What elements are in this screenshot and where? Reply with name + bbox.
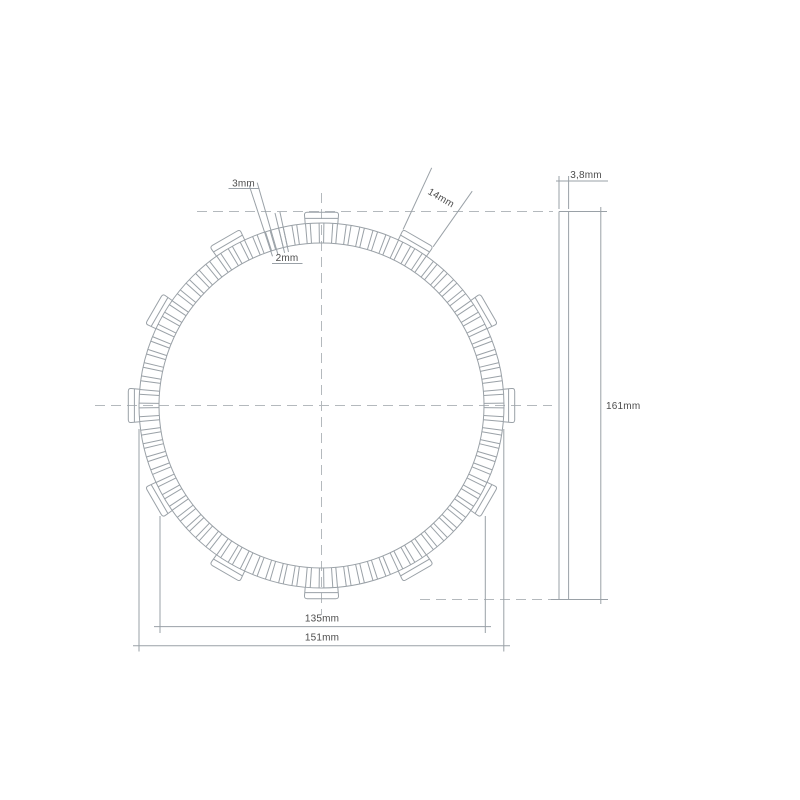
- pad-groove-line: [310, 568, 311, 588]
- pad-groove-line: [483, 428, 503, 431]
- pad-groove-line: [139, 416, 159, 417]
- pad-groove-line: [367, 561, 373, 580]
- pad-groove-line: [367, 230, 373, 249]
- pad-groove-line: [371, 560, 377, 579]
- pad-groove-line: [477, 354, 496, 360]
- ext-line-14mm-a: [403, 168, 432, 230]
- pad-groove-line: [356, 564, 360, 584]
- pad-groove-line: [180, 509, 196, 522]
- pad-groove-line: [245, 553, 253, 571]
- pad-groove-line: [141, 381, 161, 384]
- pad-groove-line: [143, 440, 163, 444]
- pad-groove-line: [270, 561, 276, 580]
- pad-groove-line: [186, 515, 201, 528]
- pad-groove-line: [480, 367, 500, 371]
- pad-groove-line: [461, 312, 478, 322]
- pad-groove-line: [483, 420, 503, 422]
- pad-groove-line: [172, 301, 188, 313]
- drawing-canvas: 3mm 2mm 14mm 3,8mm 161mm 135mm 151mm: [0, 0, 800, 800]
- pad-groove-line: [467, 478, 485, 487]
- pad-groove-line: [144, 363, 164, 368]
- pad-groove-line: [306, 224, 308, 244]
- pad-groove-line: [348, 225, 351, 245]
- pad-groove-line: [431, 270, 444, 285]
- pad-groove-line: [463, 316, 480, 326]
- pad-groove-line: [189, 280, 203, 294]
- pad-groove-line: [228, 545, 238, 562]
- pad-groove-line: [221, 541, 232, 558]
- pad-groove-line: [265, 560, 271, 579]
- pad-groove-line: [394, 551, 403, 569]
- pad-groove-line: [240, 551, 249, 569]
- pad-groove-line: [177, 505, 193, 517]
- technical-drawing-svg: 3mm 2mm 14mm 3,8mm 161mm 135mm 151mm: [0, 0, 800, 800]
- pad-groove-line: [425, 531, 438, 547]
- pad-groove-line: [332, 223, 333, 243]
- pad-groove-line: [479, 363, 499, 368]
- pad-groove-line: [371, 232, 377, 251]
- pad-groove-line: [206, 531, 219, 547]
- pad-groove-line: [411, 541, 422, 558]
- pad-groove-line: [165, 312, 182, 322]
- pad-groove-line: [455, 499, 471, 511]
- pad-groove-line: [139, 394, 159, 395]
- pad-groove-line: [467, 324, 485, 333]
- pad-groove-line: [356, 227, 360, 247]
- pad-groove-line: [210, 534, 222, 550]
- pad-groove-line: [143, 367, 163, 371]
- pad-groove-line: [196, 523, 210, 537]
- pad-groove-line: [461, 489, 478, 499]
- pad-groove-line: [469, 474, 487, 482]
- pad-groove-line: [421, 261, 433, 277]
- pad-groove-line: [310, 223, 311, 243]
- ext-line-2mm-a: [280, 212, 289, 252]
- pad-groove-line: [421, 534, 433, 550]
- pad-groove-line: [484, 416, 504, 417]
- pad-groove-line: [336, 567, 338, 587]
- pad-groove-line: [297, 567, 300, 587]
- pad-groove-line: [344, 225, 347, 245]
- pad-groove-line: [158, 478, 176, 487]
- pad-groove-line: [146, 354, 165, 360]
- pad-groove-line: [483, 381, 503, 384]
- dim-label-tab-14mm: 14mm: [426, 187, 456, 211]
- pad-groove-line: [447, 509, 463, 522]
- pad-groove-line: [482, 376, 502, 379]
- pad-groove-line: [156, 474, 174, 482]
- dim-label-overall-161mm: 161mm: [606, 401, 640, 412]
- pad-groove-line: [292, 225, 295, 245]
- pad-groove-line: [148, 349, 167, 355]
- pad-groove-line: [394, 242, 403, 260]
- pad-groove-line: [206, 264, 219, 280]
- pad-groove-line: [158, 324, 176, 333]
- pad-groove-line: [306, 567, 308, 587]
- pad-groove-line: [483, 390, 503, 392]
- pad-groove-line: [141, 376, 161, 379]
- pad-groove-line: [144, 444, 164, 449]
- pad-groove-line: [455, 301, 471, 313]
- pad-groove-line: [479, 444, 499, 449]
- pad-groove-line: [189, 518, 203, 532]
- pad-groove-line: [390, 240, 398, 258]
- pad-groove-line: [411, 253, 422, 270]
- pad-groove-line: [476, 349, 495, 355]
- pad-groove-line: [401, 547, 411, 564]
- pad-groove-line: [169, 305, 186, 316]
- pad-groove-line: [297, 225, 300, 245]
- pad-groove-line: [439, 280, 453, 294]
- pad-groove-line: [360, 228, 365, 248]
- pad-groove-line: [141, 428, 161, 431]
- pad-groove-line: [332, 568, 333, 588]
- dim-label-thickness-3-8mm: 3,8mm: [570, 170, 602, 181]
- pad-groove-line: [146, 451, 165, 457]
- pad-groove-line: [390, 553, 398, 571]
- pad-groove-line: [431, 526, 444, 541]
- pad-groove-line: [196, 273, 210, 287]
- pad-groove-line: [469, 329, 487, 337]
- pad-groove-line: [172, 499, 188, 511]
- pad-groove-line: [245, 240, 253, 258]
- pad-groove-line: [210, 261, 222, 277]
- pad-groove-line: [450, 505, 466, 517]
- pad-groove-line: [415, 256, 427, 272]
- pad-groove-line: [457, 495, 474, 506]
- pad-groove-line: [482, 432, 502, 435]
- pad-groove-line: [217, 256, 229, 272]
- pad-groove-line: [360, 563, 365, 583]
- pad-groove-line: [199, 270, 212, 285]
- dim-label-inner-135mm: 135mm: [305, 614, 339, 625]
- pad-groove-line: [476, 455, 495, 461]
- pad-groove-line: [405, 545, 415, 562]
- pad-groove-line: [140, 390, 160, 392]
- pad-groove-line: [169, 495, 186, 506]
- pad-groove-line: [228, 249, 238, 266]
- pad-groove-line: [232, 246, 242, 263]
- pad-groove-line: [442, 515, 457, 528]
- ext-line-2mm-b: [275, 213, 285, 253]
- pad-groove-line: [292, 566, 295, 586]
- pad-groove-line: [344, 567, 347, 587]
- pad-groove-line: [148, 455, 167, 461]
- pad-groove-line: [162, 485, 179, 495]
- pad-groove-line: [180, 290, 196, 303]
- pad-groove-line: [177, 294, 193, 306]
- pad-groove-line: [232, 547, 242, 564]
- pad-groove-line: [283, 564, 287, 584]
- pad-groove-line: [265, 232, 271, 251]
- pad-groove-line: [221, 253, 232, 270]
- pad-groove-line: [162, 316, 179, 326]
- pad-groove-line: [270, 230, 276, 249]
- pad-groove-line: [442, 283, 457, 296]
- dim-label-outer-151mm: 151mm: [305, 633, 339, 644]
- pad-groove-line: [450, 294, 466, 306]
- pad-groove-line: [217, 539, 229, 555]
- pad-groove-line: [156, 329, 174, 337]
- pad-groove-line: [434, 273, 448, 287]
- pad-groove-line: [477, 451, 496, 457]
- dim-label-groove-2mm: 2mm: [276, 253, 299, 264]
- pad-groove-line: [240, 242, 249, 260]
- pad-groove-line: [199, 526, 212, 541]
- pad-groove-line: [480, 440, 500, 444]
- pad-groove-line: [439, 518, 453, 532]
- pad-groove-line: [457, 305, 474, 316]
- pad-groove-line: [186, 283, 201, 296]
- pad-groove-line: [463, 485, 480, 495]
- pad-groove-line: [415, 539, 427, 555]
- pad-groove-line: [434, 523, 448, 537]
- pad-groove-line: [484, 394, 504, 395]
- pad-groove-line: [140, 420, 160, 422]
- pad-groove-line: [336, 224, 338, 244]
- dimension-labels: 3mm 2mm 14mm 3,8mm 161mm 135mm 151mm: [232, 170, 640, 644]
- pad-groove-line: [447, 290, 463, 303]
- pad-groove-line: [279, 563, 284, 583]
- pad-groove-line: [425, 264, 438, 280]
- pad-groove-line: [401, 246, 411, 263]
- pad-groove-line: [141, 432, 161, 435]
- dim-label-groove-3mm: 3mm: [232, 179, 255, 190]
- pad-groove-line: [165, 489, 182, 499]
- generated-geometry: [95, 168, 608, 652]
- pad-groove-line: [348, 566, 351, 586]
- pad-groove-line: [405, 249, 415, 266]
